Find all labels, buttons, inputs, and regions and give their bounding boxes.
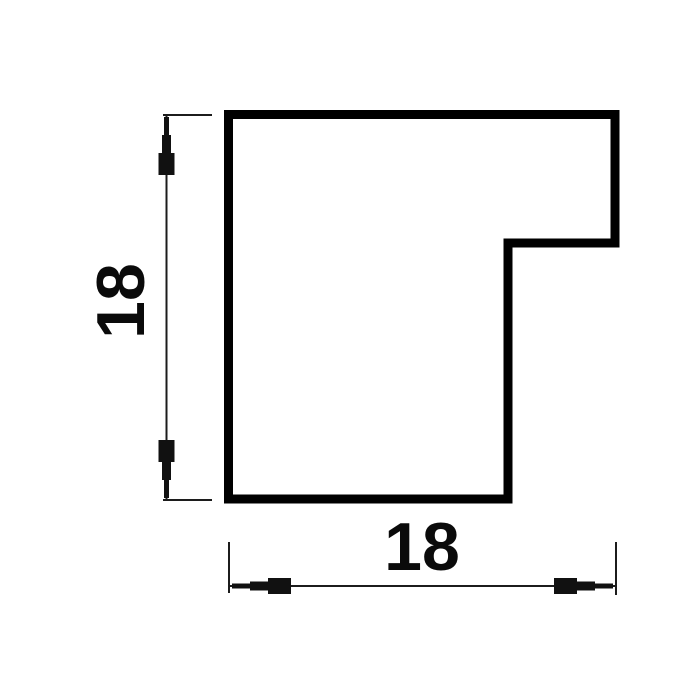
profile-drawing: 18 18: [0, 0, 700, 700]
arrow-down-icon: [159, 440, 175, 498]
vertical-dimension: 18: [83, 115, 212, 500]
horizontal-dimension: 18: [229, 509, 616, 595]
arrow-left-icon: [232, 578, 291, 594]
vertical-dimension-label: 18: [83, 263, 159, 339]
arrow-up-icon: [159, 117, 175, 175]
arrow-right-icon: [554, 578, 613, 594]
profile-outline: [229, 115, 616, 500]
drawing-canvas: 18 18: [0, 0, 700, 700]
horizontal-dimension-label: 18: [384, 509, 460, 585]
